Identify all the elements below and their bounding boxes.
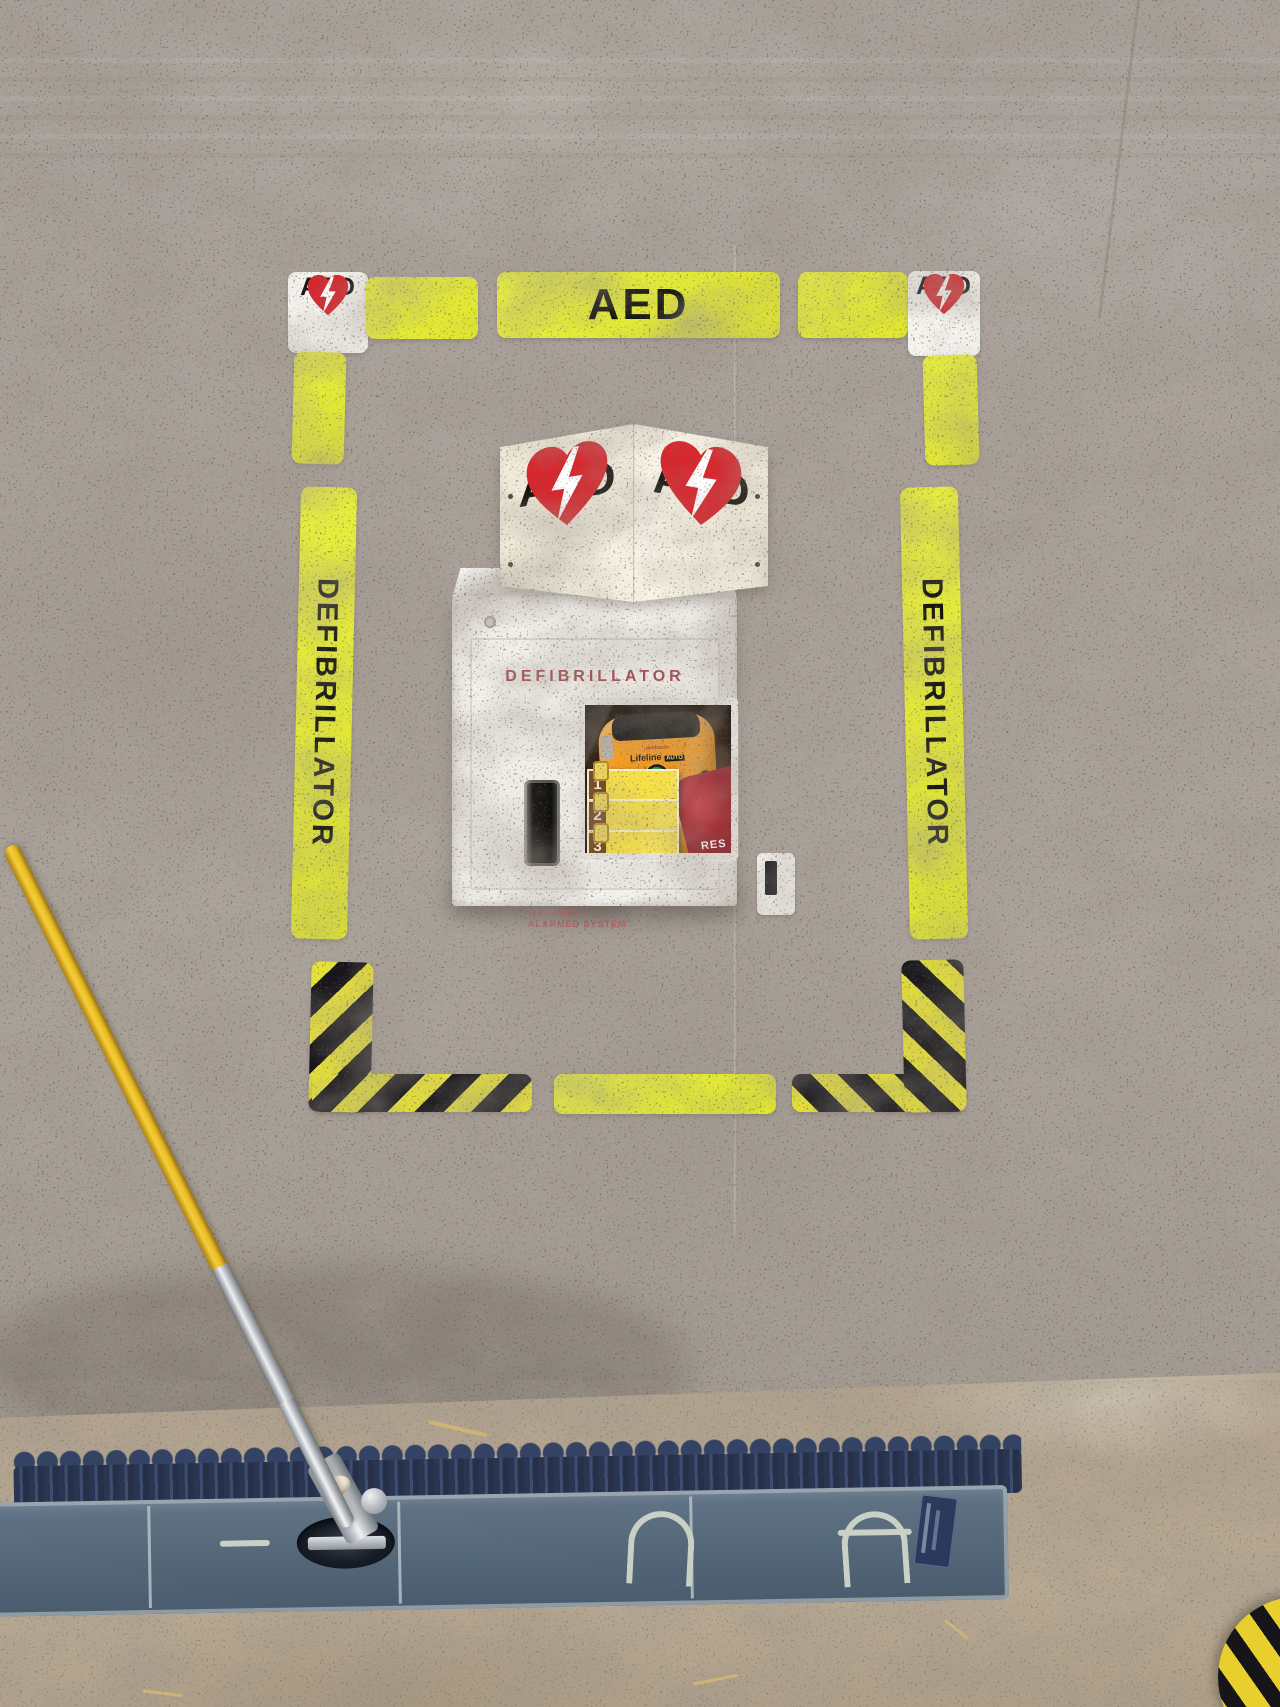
- mounting-hole: [755, 494, 760, 499]
- mop-seam: [397, 1502, 402, 1604]
- cabinet-door: DEFIBRILLATOR defibtech Lifeline AUTO RE…: [470, 638, 720, 890]
- tape-segment-right-upper: [923, 354, 980, 465]
- mop-label-stripe: [921, 1503, 931, 1553]
- mop-wire-clip: [626, 1509, 696, 1586]
- mounting-hole: [508, 562, 513, 567]
- door-handle: [524, 780, 560, 866]
- tape-corner-sign-top-left: AED: [288, 272, 368, 353]
- hazard-tape-corner-bottom-right-vertical: [901, 959, 966, 1112]
- tape-corner-sign-top-right: AED: [908, 271, 980, 356]
- mop-wire-bar: [838, 1529, 912, 1536]
- defibrillator-label: DEFIBRILLATOR: [304, 578, 343, 849]
- tape-strip-bottom: [554, 1074, 776, 1114]
- photo-aed-station: AED AED AED DEFIBRILLATOR DEFIBRILLATOR …: [0, 0, 1280, 1707]
- dust-mop: [0, 1375, 1113, 1707]
- tape-segment-left-upper: [292, 351, 347, 464]
- window-glare: [585, 705, 731, 853]
- heart-lightning-icon: [921, 272, 967, 316]
- aed-label: AED: [588, 280, 690, 330]
- cabinet-warning-text: WARNING ALARMED SYSTEM: [528, 908, 627, 930]
- heart-lightning-icon: [305, 273, 351, 317]
- warning-line2: ALARMED SYSTEM: [528, 919, 627, 930]
- aed-3d-sign: AED AED: [500, 424, 768, 602]
- defibrillator-label: DEFIBRILLATOR: [914, 578, 953, 849]
- sign-center-ridge: [633, 424, 635, 602]
- debris-straw: [428, 1420, 487, 1437]
- mop-label-stripe: [931, 1510, 940, 1550]
- cabinet-title: DEFIBRILLATOR: [472, 668, 718, 686]
- lock-icon: [484, 616, 496, 628]
- cabinet-window: defibtech Lifeline AUTO RES 1: [578, 698, 738, 860]
- wall-fixture: [757, 853, 795, 915]
- tape-arm-top-right: [798, 272, 908, 338]
- warning-line1: WARNING: [528, 908, 627, 919]
- aed-cabinet: DEFIBRILLATOR defibtech Lifeline AUTO RE…: [452, 596, 737, 906]
- aed-sign-left-panel: AED: [500, 424, 634, 602]
- tape-arm-top-left: [366, 277, 478, 339]
- tape-strip-right: DEFIBRILLATOR: [900, 486, 968, 939]
- hazard-tape-corner-bottom-left-horizontal: [312, 1074, 532, 1112]
- heart-lightning-icon: [655, 433, 747, 536]
- wall-formwork-lines: [0, 58, 1280, 168]
- aed-sign-right-panel: AED: [634, 424, 768, 602]
- mop-wire-bar: [220, 1540, 270, 1547]
- mop-fringe-bottom: [0, 1588, 1073, 1707]
- mounting-hole: [755, 562, 760, 567]
- mounting-hole: [508, 494, 513, 499]
- heart-lightning-icon: [521, 433, 613, 536]
- tape-strip-top: AED: [497, 272, 780, 338]
- wall-fixture-slot: [765, 861, 777, 895]
- mop-seam: [147, 1506, 152, 1608]
- tape-strip-left: DEFIBRILLATOR: [291, 486, 357, 939]
